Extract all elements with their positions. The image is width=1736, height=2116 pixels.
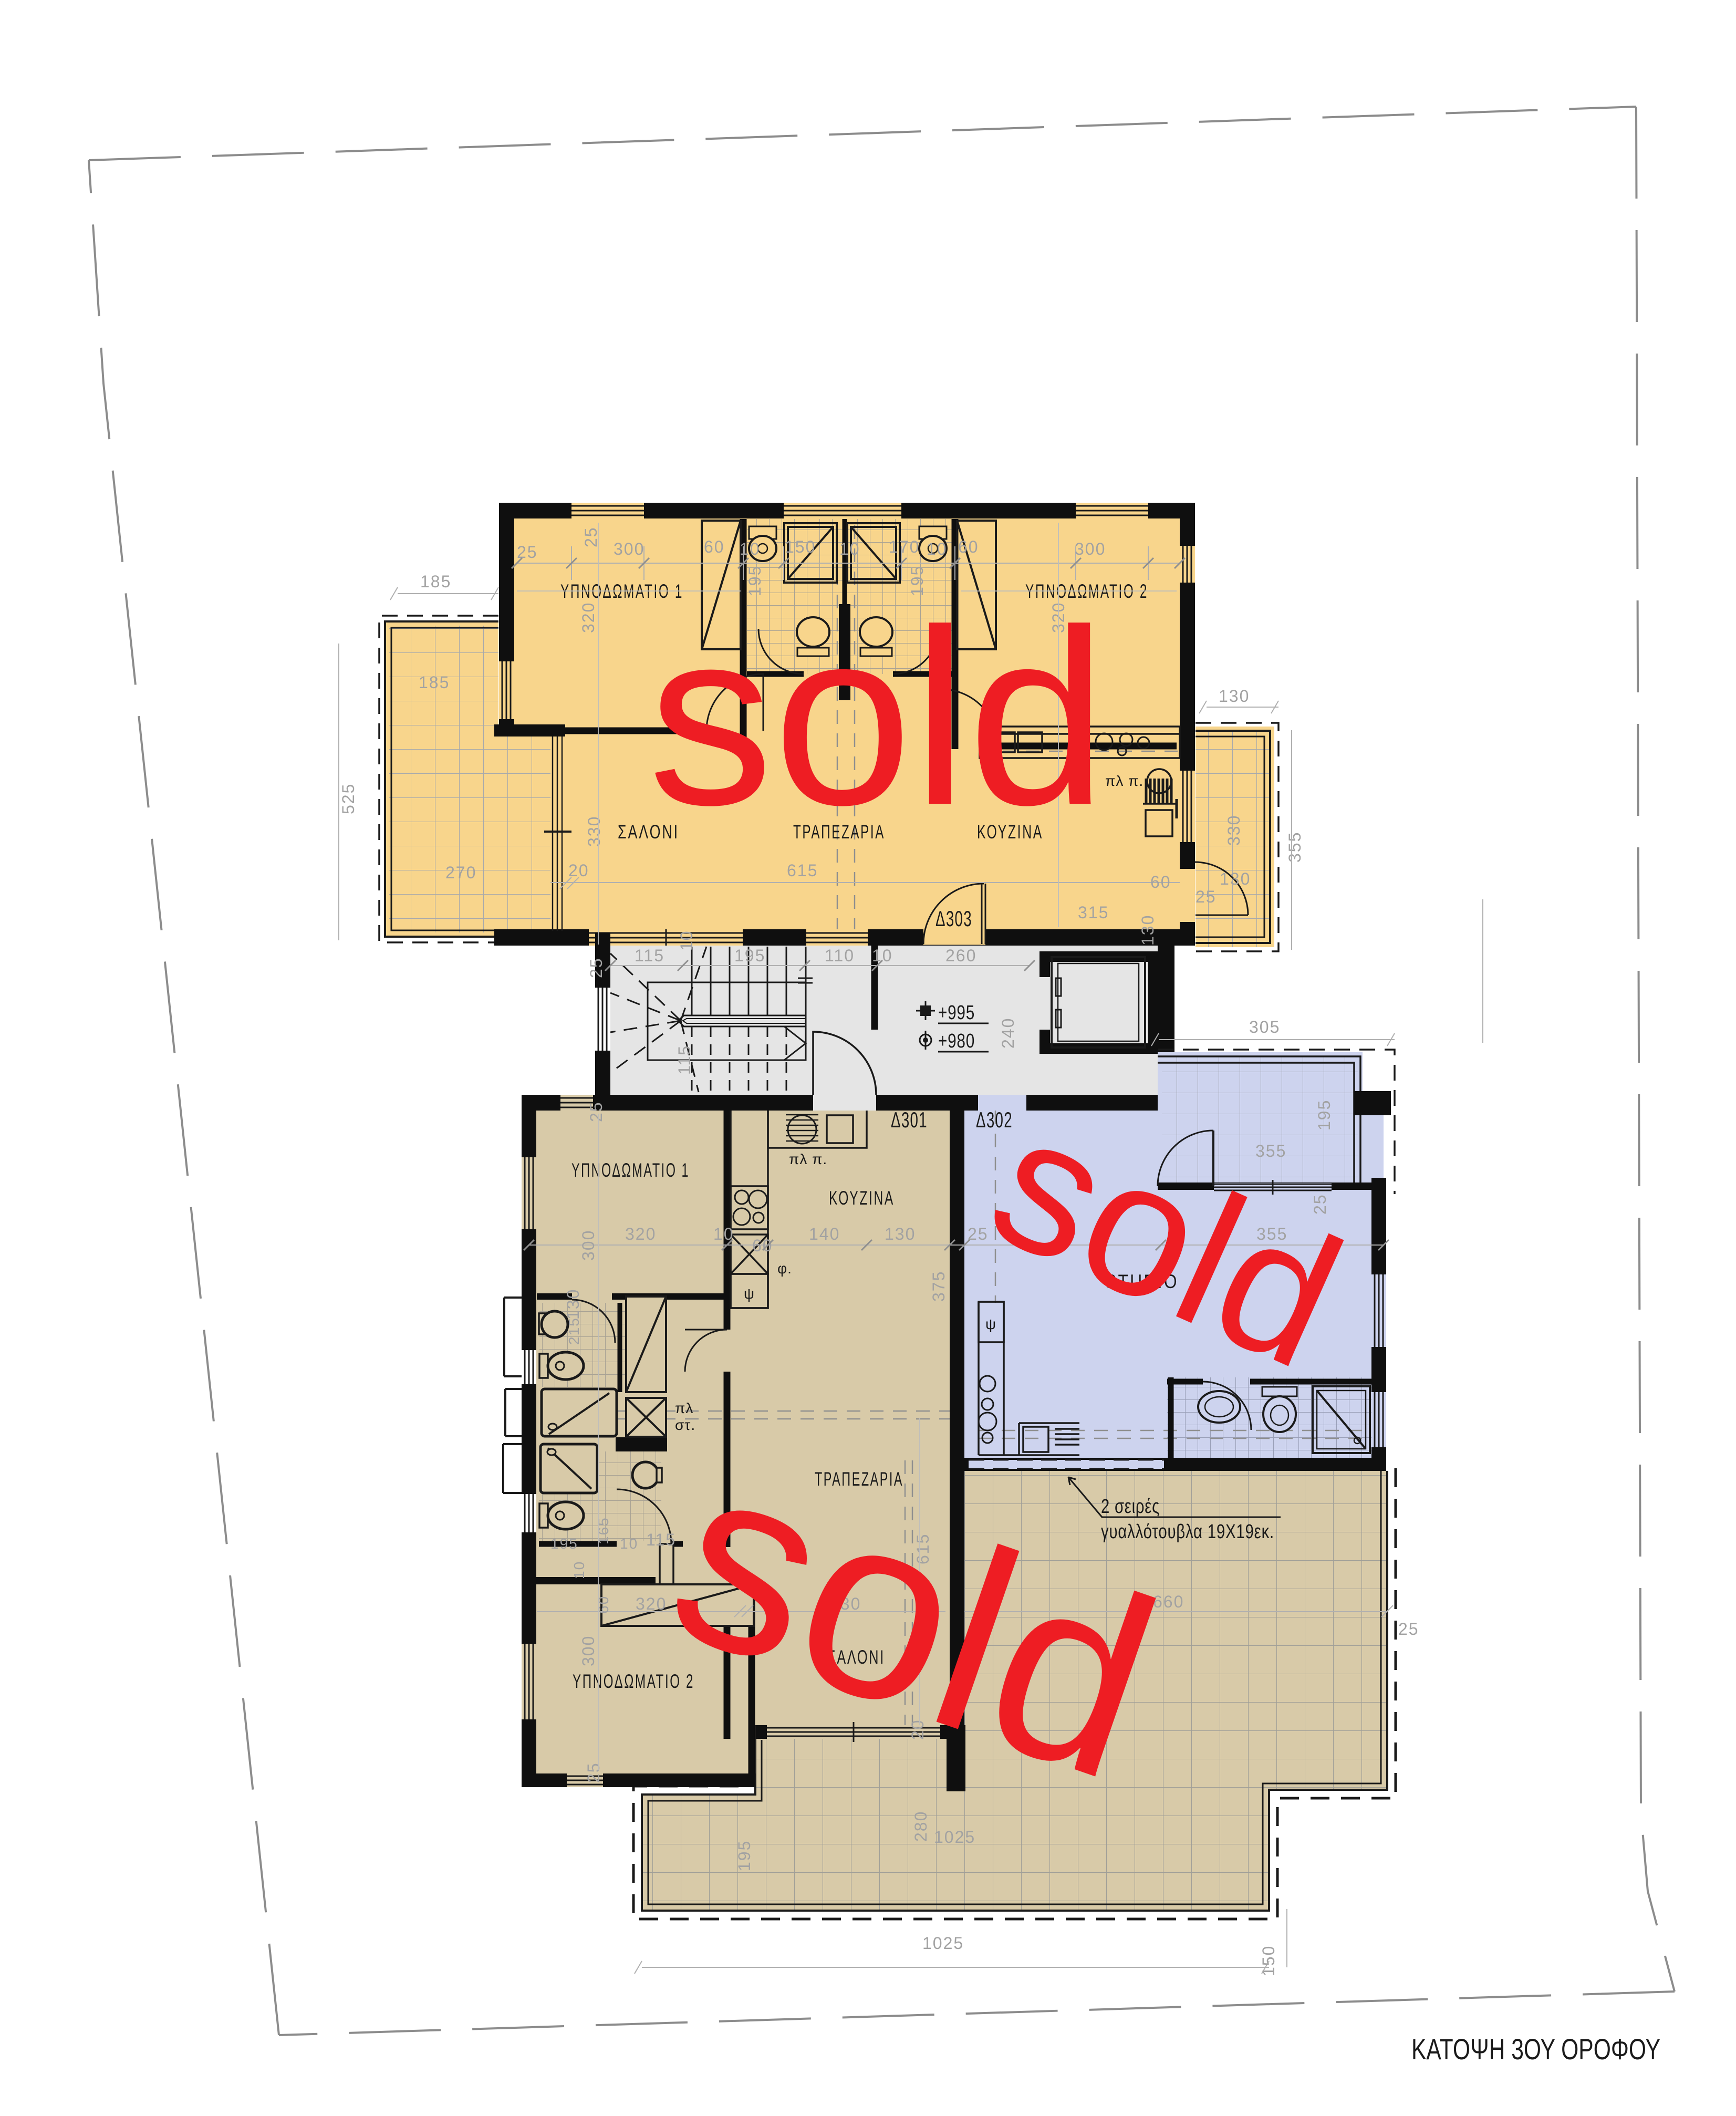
svg-text:300: 300 xyxy=(579,1230,598,1261)
svg-text:130: 130 xyxy=(885,1225,916,1243)
svg-text:185: 185 xyxy=(420,572,451,591)
svg-text:300: 300 xyxy=(1075,540,1106,558)
svg-text:1025: 1025 xyxy=(922,1934,964,1953)
svg-text:10: 10 xyxy=(677,930,696,951)
svg-text:ΚΟΥΖΙΝΑ: ΚΟΥΖΙΝΑ xyxy=(829,1187,895,1209)
svg-text:25: 25 xyxy=(581,526,600,547)
svg-text:140: 140 xyxy=(809,1225,840,1243)
svg-text:170: 170 xyxy=(889,537,920,556)
svg-text:260: 260 xyxy=(945,946,976,965)
svg-text:ΥΠΝΟΔΩΜΑΤΙΟ 1: ΥΠΝΟΔΩΜΑΤΙΟ 1 xyxy=(571,1159,690,1181)
svg-text:1025: 1025 xyxy=(934,1828,975,1847)
svg-text:60: 60 xyxy=(958,537,979,556)
svg-text:25: 25 xyxy=(587,1101,606,1122)
svg-text:60: 60 xyxy=(752,1236,773,1255)
svg-text:300: 300 xyxy=(614,540,644,558)
svg-text:150: 150 xyxy=(785,537,816,556)
svg-text:165: 165 xyxy=(595,1517,611,1544)
svg-text:πλ π.: πλ π. xyxy=(789,1151,827,1167)
svg-text:115: 115 xyxy=(675,1045,694,1075)
svg-text:320: 320 xyxy=(579,602,598,633)
svg-text:20: 20 xyxy=(568,861,589,880)
svg-text:στ.: στ. xyxy=(675,1417,695,1433)
svg-text:Δ301: Δ301 xyxy=(891,1107,928,1132)
svg-text:25: 25 xyxy=(584,1762,603,1783)
svg-text:60: 60 xyxy=(595,1595,611,1614)
svg-text:2 σειρές: 2 σειρές xyxy=(1101,1496,1160,1518)
svg-text:10: 10 xyxy=(620,1536,638,1552)
svg-text:10: 10 xyxy=(571,1561,587,1579)
svg-text:10: 10 xyxy=(872,946,893,965)
svg-text:115: 115 xyxy=(646,1530,676,1549)
svg-text:270: 270 xyxy=(445,863,476,882)
svg-text:130: 130 xyxy=(1138,915,1157,946)
svg-text:130: 130 xyxy=(564,1289,583,1320)
svg-text:150: 150 xyxy=(1259,1945,1278,1976)
svg-text:305: 305 xyxy=(1249,1018,1280,1036)
svg-text:240: 240 xyxy=(999,1018,1017,1049)
svg-text:320: 320 xyxy=(636,1594,667,1613)
svg-text:sold: sold xyxy=(648,577,1107,857)
svg-text:πλ π.: πλ π. xyxy=(1105,773,1144,789)
svg-text:215: 215 xyxy=(566,1317,582,1345)
svg-text:25: 25 xyxy=(517,543,538,562)
svg-text:185: 185 xyxy=(419,673,450,692)
svg-text:110: 110 xyxy=(825,946,855,965)
svg-text:25: 25 xyxy=(587,957,606,978)
svg-text:πλ: πλ xyxy=(675,1400,693,1416)
svg-text:115: 115 xyxy=(635,946,664,965)
svg-text:130: 130 xyxy=(1220,869,1251,888)
svg-text:ψ: ψ xyxy=(744,1285,755,1302)
svg-text:315: 315 xyxy=(1078,903,1109,922)
svg-text:195: 195 xyxy=(1315,1100,1334,1130)
svg-text:355: 355 xyxy=(1285,832,1304,863)
svg-text:195: 195 xyxy=(550,1536,578,1552)
svg-text:525: 525 xyxy=(339,783,358,814)
svg-text:280: 280 xyxy=(911,1811,930,1842)
svg-text:ΚΑΤΟΨΗ 3ΟΥ ΟΡΟΦΟΥ: ΚΑΤΟΨΗ 3ΟΥ ΟΡΟΦΟΥ xyxy=(1411,2032,1660,2066)
svg-text:Δ302: Δ302 xyxy=(976,1107,1013,1132)
svg-text:130: 130 xyxy=(1219,687,1250,706)
svg-text:ψ: ψ xyxy=(985,1316,996,1332)
svg-text:355: 355 xyxy=(1255,1142,1286,1160)
svg-text:195: 195 xyxy=(734,946,765,965)
svg-text:330: 330 xyxy=(1224,815,1243,846)
svg-text:375: 375 xyxy=(929,1271,948,1302)
svg-text:195: 195 xyxy=(735,1840,754,1871)
svg-text:330: 330 xyxy=(585,816,604,847)
svg-text:60: 60 xyxy=(704,537,725,556)
svg-text:10: 10 xyxy=(927,540,948,558)
svg-text:10: 10 xyxy=(740,540,761,558)
svg-text:φ.: φ. xyxy=(777,1260,792,1277)
svg-text:320: 320 xyxy=(625,1225,656,1243)
svg-text:615: 615 xyxy=(787,861,818,880)
svg-text:300: 300 xyxy=(579,1635,598,1666)
svg-text:Δ303: Δ303 xyxy=(935,906,972,931)
svg-text:+995: +995 xyxy=(938,1002,975,1024)
svg-text:+980: +980 xyxy=(938,1030,975,1052)
svg-text:25: 25 xyxy=(1196,887,1217,906)
svg-text:60: 60 xyxy=(1150,873,1171,891)
svg-text:25: 25 xyxy=(1398,1620,1419,1638)
svg-text:10: 10 xyxy=(839,540,860,558)
